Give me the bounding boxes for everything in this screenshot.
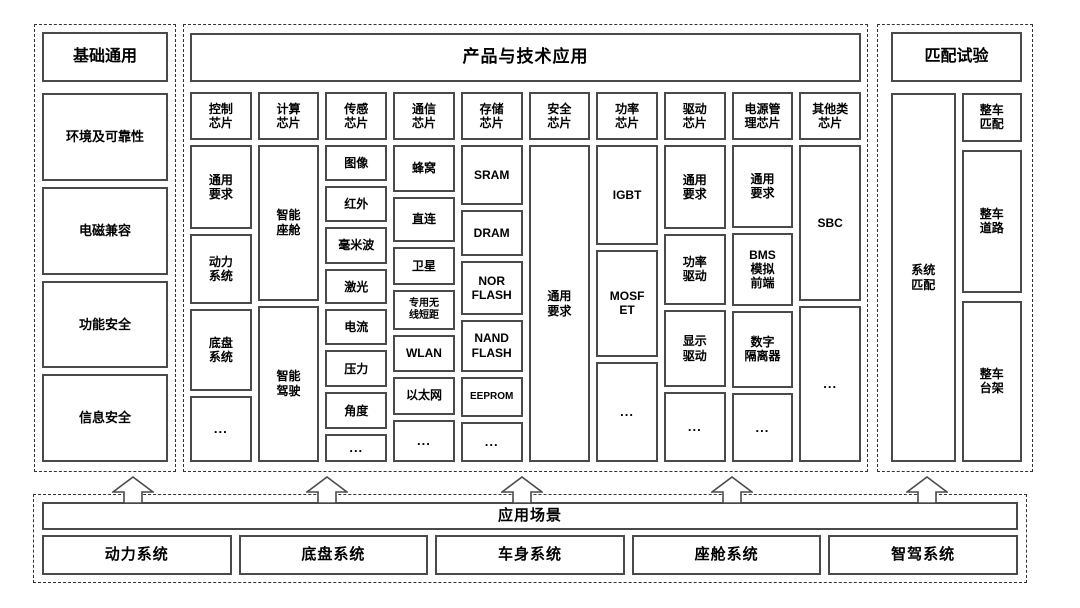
chip-column-header: 其他类 芯片: [799, 92, 861, 140]
chip-item: ...: [596, 362, 658, 462]
chip-item: 压力: [325, 350, 387, 387]
chip-column: 控制 芯片通用 要求动力 系统底盘 系统...: [190, 92, 252, 462]
products-tech-panel: 产品与技术应用 控制 芯片通用 要求动力 系统底盘 系统...计算 芯片智能 座…: [183, 24, 868, 472]
vehicle-matching-box: 整车 道路: [962, 150, 1023, 293]
application-scenarios-title: 应用场景: [42, 502, 1018, 530]
up-arrow-icon: [112, 476, 154, 504]
chip-item: 图像: [325, 145, 387, 181]
chip-item: 功率 驱动: [664, 234, 726, 304]
chip-item: IGBT: [596, 145, 658, 245]
chip-column: 功率 芯片IGBTMOSF ET...: [596, 92, 658, 462]
up-arrow-icon: [501, 476, 543, 504]
chip-item: 动力 系统: [190, 234, 252, 304]
chip-column: 电源管 理芯片通用 要求BMS 模拟 前端数字 隔离器...: [732, 92, 794, 462]
scenario-box: 动力系统: [42, 535, 232, 575]
products-tech-title: 产品与技术应用: [190, 33, 861, 82]
chip-columns: 控制 芯片通用 要求动力 系统底盘 系统...计算 芯片智能 座舱智能 驾驶传感…: [190, 92, 861, 462]
chip-item: 红外: [325, 186, 387, 222]
up-arrow-icon: [711, 476, 753, 504]
chip-item: 通用 要求: [732, 145, 794, 228]
base-item: 电磁兼容: [42, 187, 168, 275]
chip-column-header: 通信 芯片: [393, 92, 455, 140]
chip-item: 底盘 系统: [190, 309, 252, 391]
chip-item: ...: [190, 396, 252, 462]
vehicle-matching-box: 整车 台架: [962, 301, 1023, 462]
vehicle-matching-box: 整车 匹配: [962, 93, 1023, 142]
base-general-items: 环境及可靠性电磁兼容功能安全信息安全: [42, 93, 168, 462]
chip-column: 计算 芯片智能 座舱智能 驾驶: [258, 92, 320, 462]
chip-item: 显示 驱动: [664, 310, 726, 388]
chip-column-header: 存储 芯片: [461, 92, 523, 140]
base-general-title: 基础通用: [42, 32, 168, 82]
scenario-box: 座舱系统: [632, 535, 822, 575]
chip-item: 数字 隔离器: [732, 311, 794, 388]
chip-column-items: 图像红外毫米波激光电流压力角度...: [325, 145, 387, 462]
chip-column-header: 计算 芯片: [258, 92, 320, 140]
chip-item: 电流: [325, 309, 387, 345]
chip-item: ...: [461, 422, 523, 462]
chip-column-header: 安全 芯片: [529, 92, 591, 140]
chip-item: ...: [732, 393, 794, 462]
chip-item: SRAM: [461, 145, 523, 205]
chip-item: 毫米波: [325, 227, 387, 264]
chip-column-items: 蜂窝直连卫星专用无 线短距WLAN以太网...: [393, 145, 455, 462]
matching-test-body: 系统 匹配 整车 匹配整车 道路整车 台架: [891, 93, 1022, 462]
system-matching-box: 系统 匹配: [891, 93, 956, 462]
chip-column: 驱动 芯片通用 要求功率 驱动显示 驱动...: [664, 92, 726, 462]
chip-column-header: 驱动 芯片: [664, 92, 726, 140]
chip-column-items: SRAMDRAMNOR FLASHNAND FLASHEEPROM...: [461, 145, 523, 462]
chip-item: 角度: [325, 392, 387, 429]
chip-item: DRAM: [461, 210, 523, 256]
matching-test-title: 匹配试验: [891, 32, 1022, 82]
chip-column-items: 通用 要求功率 驱动显示 驱动...: [664, 145, 726, 462]
base-general-panel: 基础通用 环境及可靠性电磁兼容功能安全信息安全: [34, 24, 176, 472]
chip-item: 通用 要求: [529, 145, 591, 462]
chip-item: 智能 座舱: [258, 145, 320, 301]
chip-item: ...: [325, 434, 387, 462]
chip-column: 安全 芯片通用 要求: [529, 92, 591, 462]
chip-item: SBC: [799, 145, 861, 301]
chip-column: 通信 芯片蜂窝直连卫星专用无 线短距WLAN以太网...: [393, 92, 455, 462]
chip-item: WLAN: [393, 335, 455, 371]
chip-column-header: 功率 芯片: [596, 92, 658, 140]
up-arrow-icon: [906, 476, 948, 504]
chip-column-items: 通用 要求: [529, 145, 591, 462]
chip-item: NOR FLASH: [461, 261, 523, 314]
chip-item: ...: [799, 306, 861, 462]
chip-item: ...: [664, 392, 726, 462]
chip-column-items: 智能 座舱智能 驾驶: [258, 145, 320, 462]
scenario-box: 车身系统: [435, 535, 625, 575]
chip-column-items: 通用 要求动力 系统底盘 系统...: [190, 145, 252, 462]
diagram-canvas: 基础通用 环境及可靠性电磁兼容功能安全信息安全 产品与技术应用 控制 芯片通用 …: [0, 0, 1080, 608]
chip-column-header: 控制 芯片: [190, 92, 252, 140]
chip-column-header: 传感 芯片: [325, 92, 387, 140]
chip-column-items: 通用 要求BMS 模拟 前端数字 隔离器...: [732, 145, 794, 462]
matching-test-panel: 匹配试验 系统 匹配 整车 匹配整车 道路整车 台架: [877, 24, 1033, 472]
chip-item: 激光: [325, 269, 387, 304]
scenario-boxes: 动力系统底盘系统车身系统座舱系统智驾系统: [42, 535, 1018, 575]
chip-item: 卫星: [393, 247, 455, 285]
chip-item: 直连: [393, 197, 455, 243]
chip-item: ...: [393, 420, 455, 462]
chip-item: 蜂窝: [393, 145, 455, 192]
chip-item: 专用无 线短距: [393, 290, 455, 330]
vehicle-matching-list: 整车 匹配整车 道路整车 台架: [962, 93, 1023, 462]
base-item: 信息安全: [42, 374, 168, 462]
chip-item: 以太网: [393, 377, 455, 415]
chip-item: 智能 驾驶: [258, 306, 320, 462]
chip-column-items: SBC...: [799, 145, 861, 462]
application-scenarios-panel: 应用场景 动力系统底盘系统车身系统座舱系统智驾系统: [33, 494, 1027, 583]
chip-column-header: 电源管 理芯片: [732, 92, 794, 140]
chip-column: 传感 芯片图像红外毫米波激光电流压力角度...: [325, 92, 387, 462]
base-item: 功能安全: [42, 281, 168, 369]
chip-item: NAND FLASH: [461, 320, 523, 372]
chip-item: EEPROM: [461, 377, 523, 417]
base-item: 环境及可靠性: [42, 93, 168, 181]
up-arrow-icon: [306, 476, 348, 504]
chip-column-items: IGBTMOSF ET...: [596, 145, 658, 462]
scenario-box: 底盘系统: [239, 535, 429, 575]
chip-item: BMS 模拟 前端: [732, 233, 794, 306]
chip-item: MOSF ET: [596, 250, 658, 356]
chip-column: 存储 芯片SRAMDRAMNOR FLASHNAND FLASHEEPROM..…: [461, 92, 523, 462]
scenario-box: 智驾系统: [828, 535, 1018, 575]
chip-item: 通用 要求: [664, 145, 726, 229]
chip-column: 其他类 芯片SBC...: [799, 92, 861, 462]
chip-item: 通用 要求: [190, 145, 252, 229]
